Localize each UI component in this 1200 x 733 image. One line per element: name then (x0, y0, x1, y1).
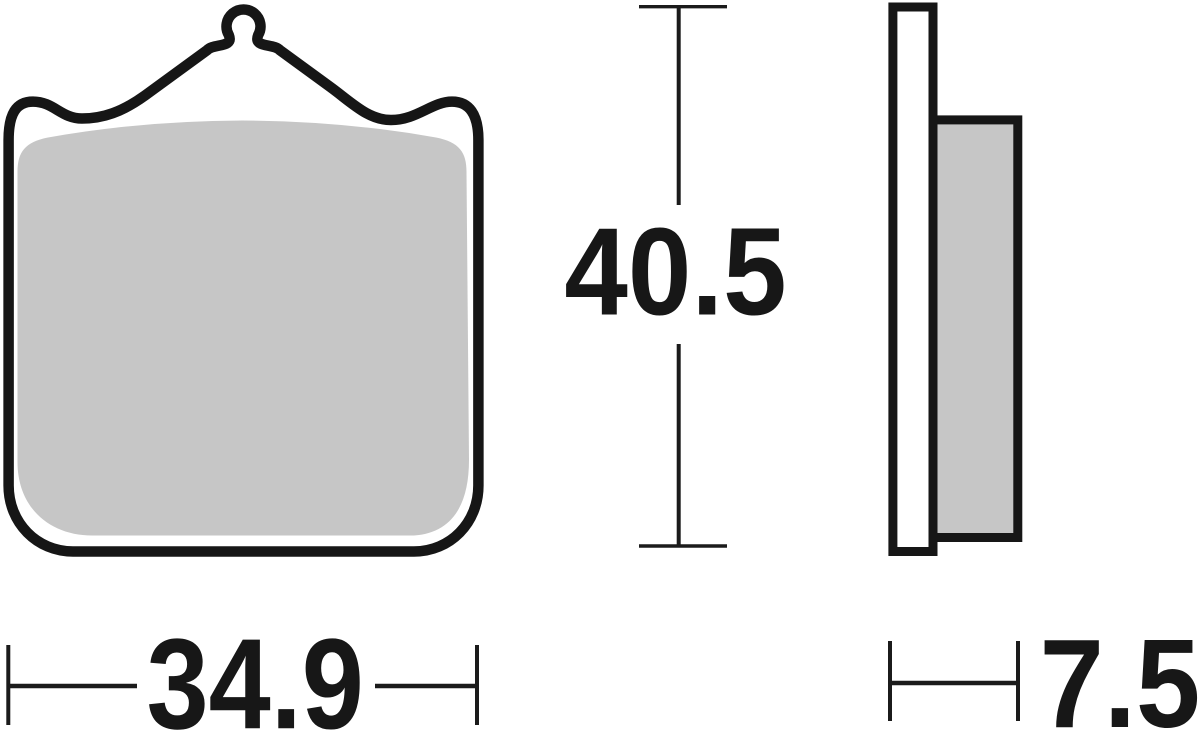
svg-text:40.5: 40.5 (564, 203, 786, 342)
svg-text:7.5: 7.5 (1040, 613, 1200, 733)
svg-text:34.9: 34.9 (147, 612, 364, 733)
